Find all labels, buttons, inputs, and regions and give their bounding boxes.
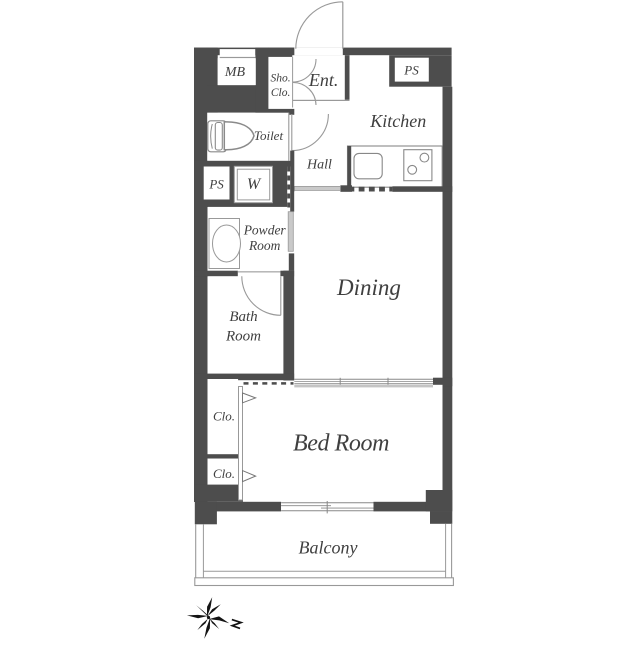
svg-text:Room: Room [225, 328, 261, 344]
svg-text:Room: Room [248, 238, 281, 253]
svg-text:Toilet: Toilet [254, 128, 284, 143]
svg-text:Powder: Powder [243, 223, 287, 238]
svg-text:Clo.: Clo. [271, 87, 291, 99]
svg-text:Balcony: Balcony [299, 538, 358, 558]
svg-text:Sho.: Sho. [271, 73, 291, 85]
svg-text:Clo.: Clo. [213, 466, 235, 481]
svg-text:Ent.: Ent. [308, 70, 339, 90]
svg-text:Clo.: Clo. [213, 408, 235, 423]
svg-text:Hall: Hall [306, 157, 332, 172]
svg-text:PS: PS [208, 177, 224, 192]
svg-text:Kitchen: Kitchen [369, 111, 426, 131]
svg-text:Bed Room: Bed Room [293, 430, 389, 456]
svg-text:Bath: Bath [229, 309, 257, 325]
svg-text:W: W [247, 176, 262, 193]
svg-text:Dining: Dining [336, 275, 401, 300]
svg-text:PS: PS [403, 62, 419, 77]
svg-text:MB: MB [224, 65, 246, 80]
